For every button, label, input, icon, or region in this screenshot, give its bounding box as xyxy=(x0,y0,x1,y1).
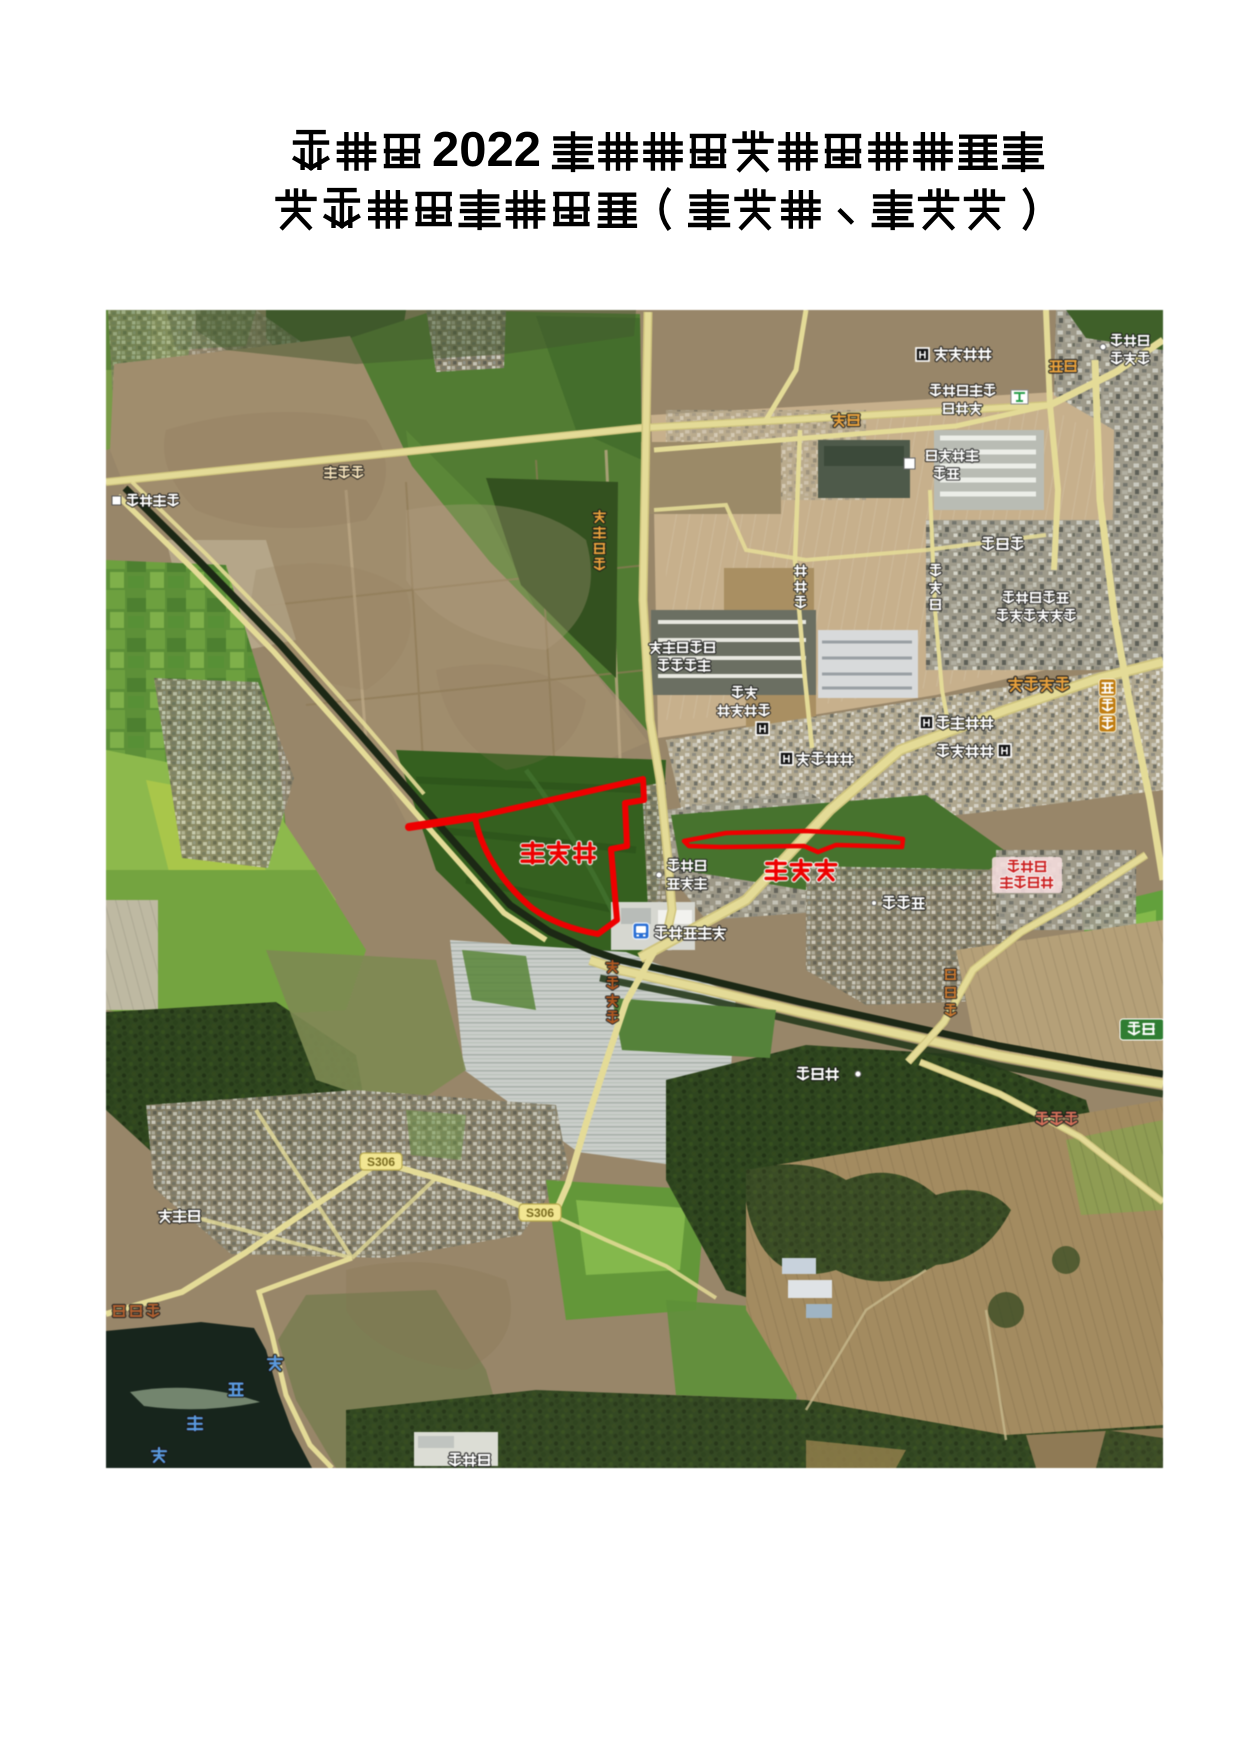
svg-text:H: H xyxy=(919,350,927,362)
svg-text:2022: 2022 xyxy=(432,123,541,177)
svg-text:S306: S306 xyxy=(526,1206,554,1220)
svg-text:H: H xyxy=(783,754,791,766)
svg-text:H: H xyxy=(923,718,931,730)
svg-text:H: H xyxy=(759,724,767,736)
svg-text:H: H xyxy=(1001,746,1009,758)
svg-text:S306: S306 xyxy=(367,1155,395,1169)
